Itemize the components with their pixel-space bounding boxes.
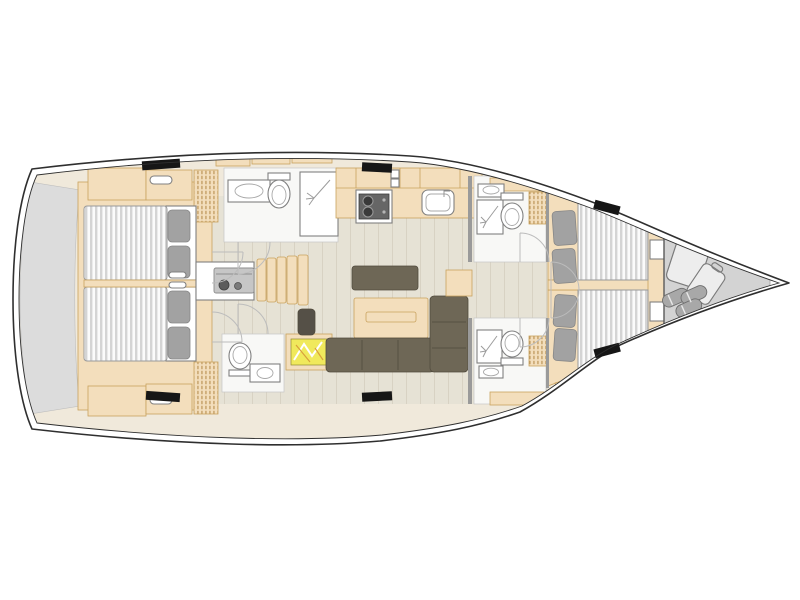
- latch-icon: [169, 282, 186, 288]
- companionway-step: [267, 258, 276, 302]
- aft-port-locker: [88, 168, 146, 200]
- pillow: [168, 291, 190, 323]
- companionway-step: [257, 259, 266, 301]
- shelf-box: [650, 302, 665, 321]
- engine-pulley-icon: [235, 283, 242, 290]
- shelf-box: [650, 240, 665, 259]
- aft-port-locker: [146, 170, 192, 200]
- pillow: [168, 210, 190, 242]
- shower-stall: [300, 172, 338, 236]
- latch-icon: [169, 272, 186, 278]
- toilet-icon: [268, 180, 290, 208]
- toilet-tank: [268, 173, 290, 180]
- pillow: [553, 294, 577, 327]
- interior: [19, 153, 791, 439]
- salon-sofa-long: [326, 338, 434, 372]
- pillow: [168, 327, 190, 359]
- pillow: [553, 328, 577, 361]
- yacht-floor-plan-page: [0, 0, 800, 600]
- aft-port-mattress: [84, 206, 167, 280]
- hull-window: [362, 162, 392, 173]
- stove-knob: [382, 210, 385, 213]
- bulkhead-wall: [468, 318, 472, 404]
- toilet-tank: [501, 193, 523, 200]
- aft-head-starboard: [222, 334, 284, 392]
- stove-knob: [382, 198, 385, 201]
- wardrobe-starboard: [194, 362, 218, 414]
- burner-icon: [363, 207, 373, 217]
- salon-table: [354, 298, 428, 338]
- nav-stool: [298, 309, 315, 335]
- aft-starboard-mattress: [84, 287, 167, 361]
- spice-box: [391, 170, 399, 178]
- toilet-tank: [229, 370, 251, 376]
- stove-top: [359, 194, 389, 219]
- vent-icon: [150, 176, 172, 184]
- companionway-step: [287, 256, 297, 304]
- salon-sofa-side: [430, 296, 468, 372]
- side-cabinet: [446, 270, 472, 296]
- nav-station: [286, 334, 332, 370]
- hull-window: [362, 391, 392, 402]
- aft-starboard-locker: [88, 386, 146, 416]
- aft-head-port: [224, 168, 338, 242]
- wardrobe-port: [194, 170, 218, 222]
- salon-bench: [352, 266, 418, 290]
- toilet-tank: [501, 358, 523, 365]
- spice-box: [391, 179, 399, 187]
- pillow: [552, 210, 577, 246]
- bulkhead-wall: [468, 176, 472, 262]
- yacht-floor-plan: [0, 0, 800, 600]
- sink-counter: [228, 180, 270, 202]
- companionway-step: [298, 255, 308, 305]
- sink-counter: [250, 364, 280, 382]
- louver-locker: [529, 192, 548, 224]
- swim-platform: [20, 182, 80, 414]
- companionway-step: [277, 257, 286, 303]
- engine-block: [214, 268, 254, 293]
- burner-icon: [363, 196, 373, 206]
- pillow: [552, 248, 577, 284]
- forward-head-starboard: [474, 318, 548, 405]
